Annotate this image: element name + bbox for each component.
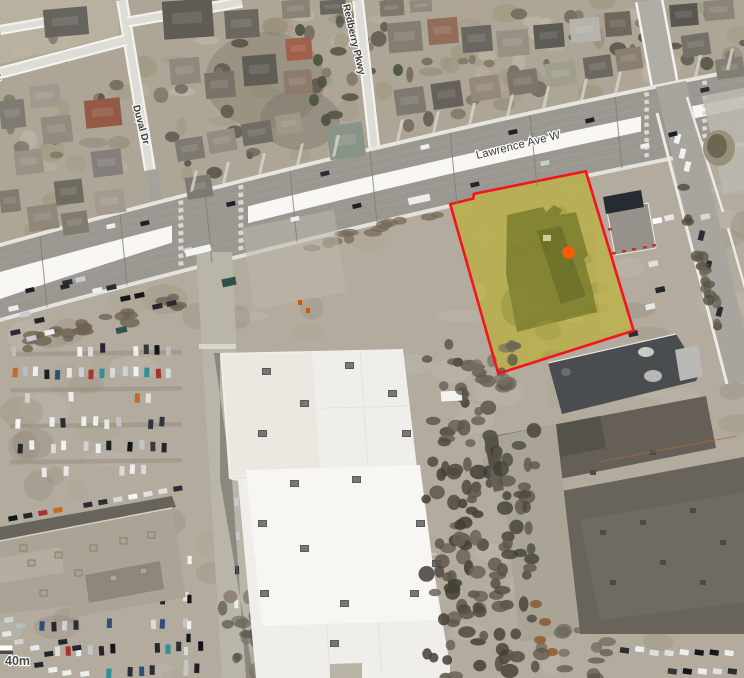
svg-text:40m: 40m <box>5 654 30 668</box>
